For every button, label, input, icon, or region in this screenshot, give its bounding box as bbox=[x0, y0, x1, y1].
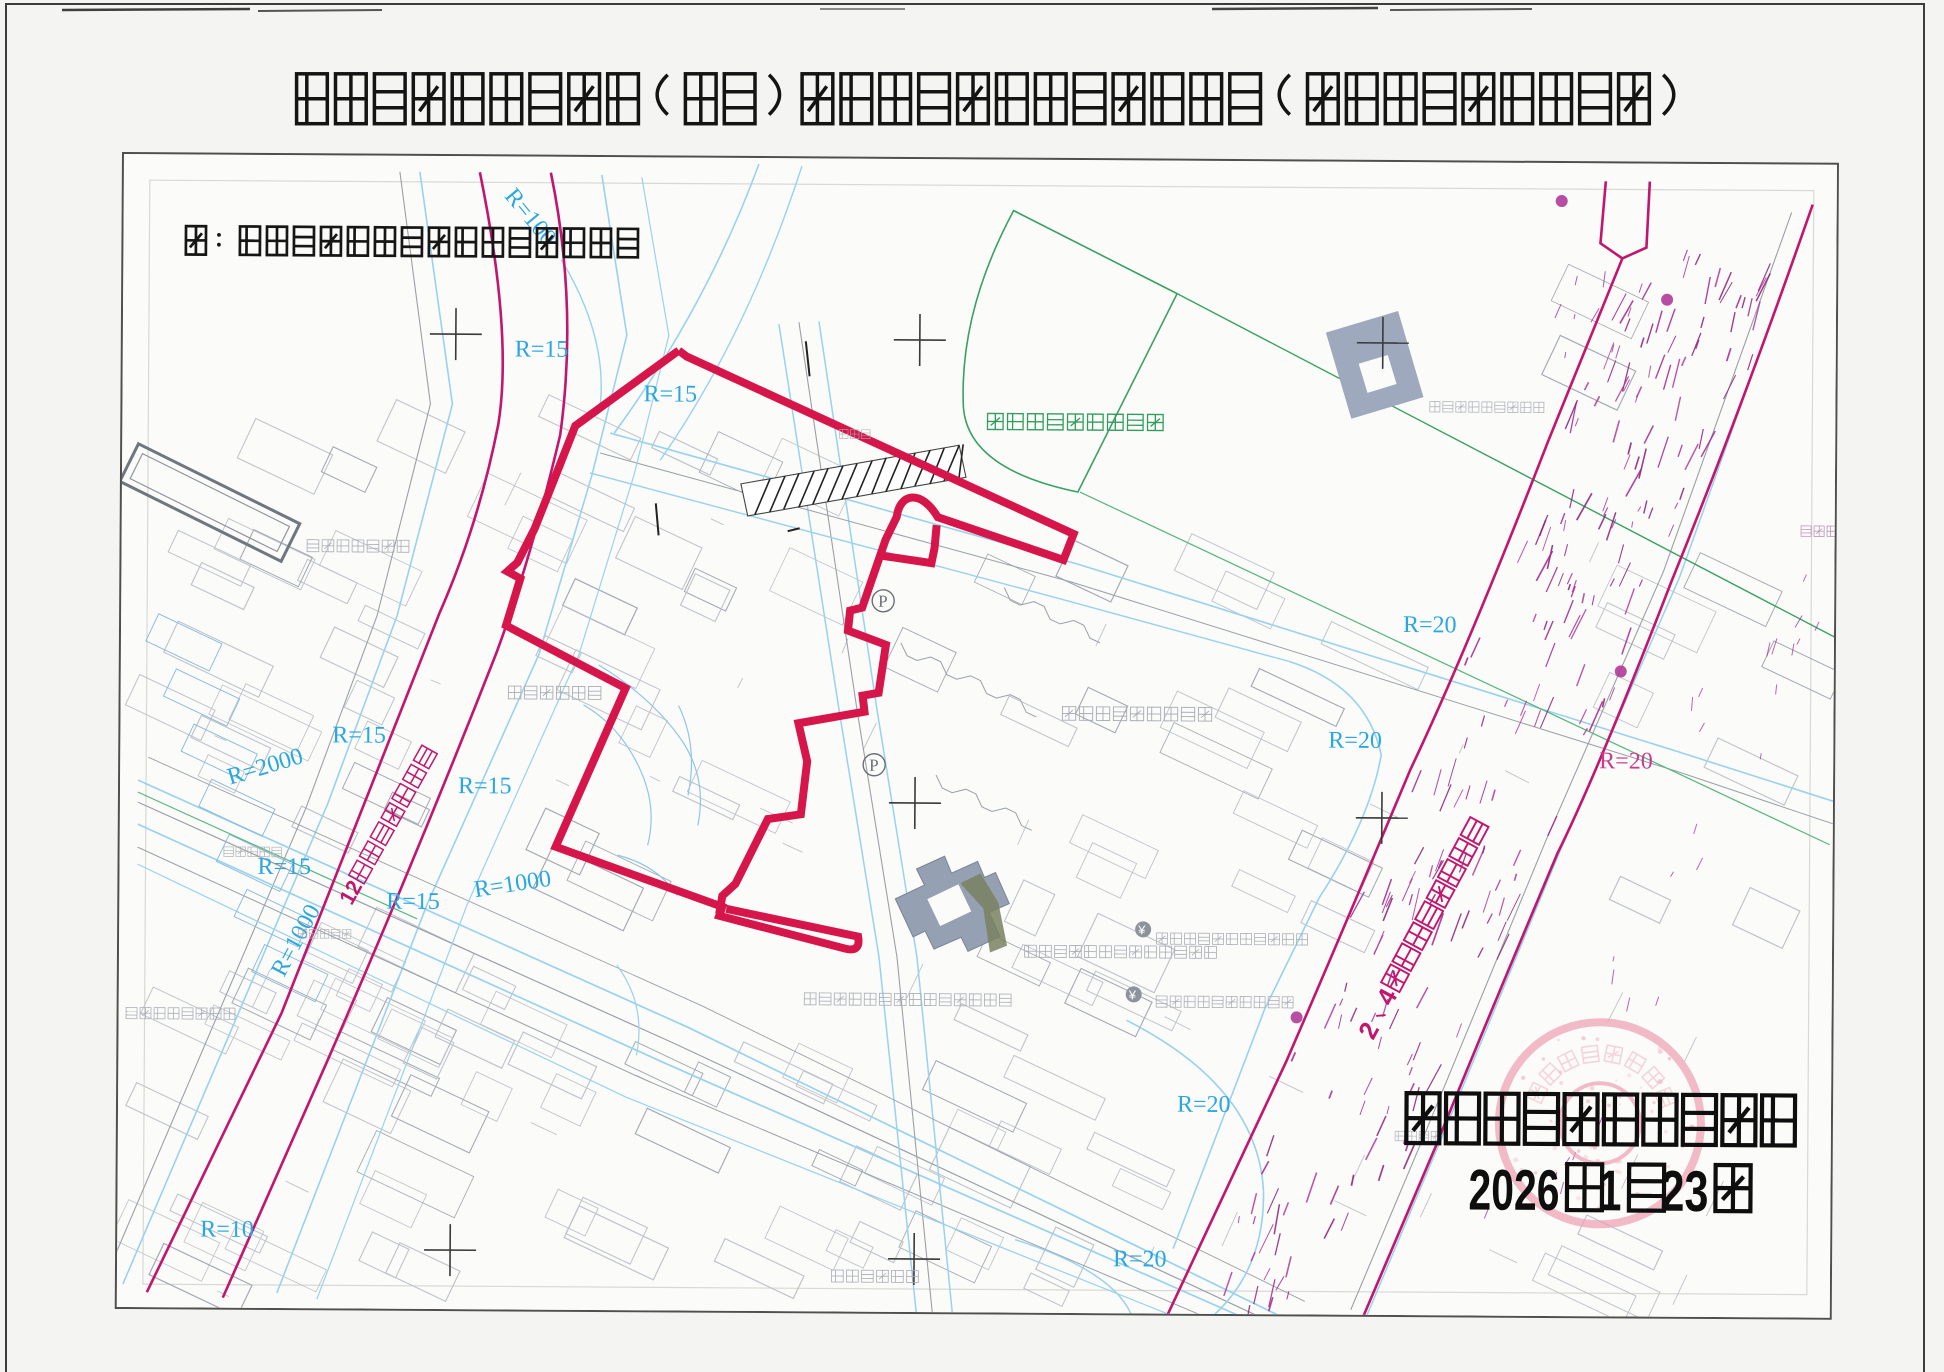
svg-text:R=20: R=20 bbox=[1113, 1246, 1167, 1272]
svg-text:¥: ¥ bbox=[1128, 987, 1137, 1002]
svg-text:R=15: R=15 bbox=[458, 773, 512, 799]
svg-text:2026: 2026 bbox=[1468, 1158, 1559, 1223]
svg-text:R=15: R=15 bbox=[386, 889, 440, 915]
svg-text:R=20: R=20 bbox=[1599, 748, 1653, 774]
svg-text:P: P bbox=[869, 756, 879, 775]
svg-text:R=20: R=20 bbox=[1177, 1092, 1231, 1118]
svg-text:R=10: R=10 bbox=[200, 1217, 254, 1243]
svg-text:R=15: R=15 bbox=[643, 381, 697, 407]
svg-text:P: P bbox=[878, 592, 888, 611]
svg-text:R=15: R=15 bbox=[515, 336, 569, 362]
svg-text:R=15: R=15 bbox=[332, 722, 386, 748]
svg-text:23: 23 bbox=[1660, 1160, 1708, 1224]
svg-text:R=20: R=20 bbox=[1328, 728, 1382, 754]
svg-text:1: 1 bbox=[1598, 1159, 1621, 1223]
svg-text:¥: ¥ bbox=[1137, 922, 1146, 937]
svg-text:R=15: R=15 bbox=[257, 854, 311, 880]
svg-text:R=20: R=20 bbox=[1403, 612, 1457, 638]
